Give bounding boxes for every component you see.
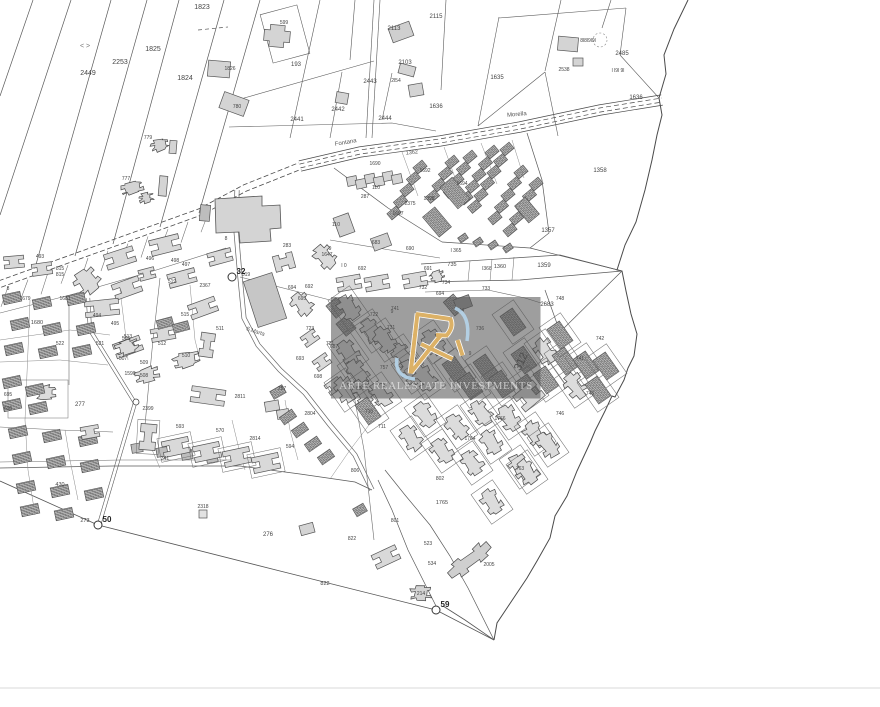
- svg-text:59: 59: [441, 600, 450, 609]
- svg-text:2442: 2442: [331, 107, 345, 113]
- svg-text:780: 780: [233, 104, 242, 110]
- svg-text:32: 32: [237, 267, 246, 276]
- svg-text:2811: 2811: [235, 394, 246, 400]
- svg-text:508: 508: [140, 373, 149, 379]
- svg-text:2441: 2441: [290, 117, 304, 123]
- svg-text:692: 692: [305, 284, 314, 290]
- svg-text:1764: 1764: [464, 436, 475, 442]
- svg-text:734: 734: [442, 280, 451, 286]
- svg-text:110: 110: [372, 185, 380, 191]
- svg-text:276: 276: [263, 532, 274, 538]
- svg-text:777: 777: [122, 176, 131, 182]
- svg-text:8: 8: [225, 236, 228, 242]
- svg-text:497: 497: [182, 262, 191, 268]
- svg-text:511: 511: [216, 326, 224, 332]
- svg-text:593: 593: [176, 424, 185, 430]
- svg-text:745: 745: [586, 391, 595, 397]
- svg-text:l368: l368: [482, 266, 492, 272]
- svg-text:757: 757: [278, 386, 287, 392]
- svg-text:522: 522: [56, 341, 65, 347]
- svg-text:2103: 2103: [398, 60, 412, 66]
- svg-text:683: 683: [372, 240, 381, 246]
- svg-text:1826: 1826: [224, 66, 235, 72]
- svg-text:283: 283: [283, 243, 292, 249]
- svg-text:341: 341: [161, 456, 170, 462]
- svg-text:594: 594: [286, 444, 295, 450]
- svg-text:l 0: l 0: [341, 263, 347, 269]
- svg-text:695: 695: [298, 296, 307, 302]
- svg-text:802: 802: [436, 476, 445, 482]
- svg-text:2375: 2375: [404, 201, 415, 207]
- svg-text:2804: 2804: [304, 411, 315, 417]
- svg-text:509: 509: [140, 360, 149, 366]
- svg-text:1679: 1679: [19, 296, 30, 302]
- svg-text:815: 815: [56, 266, 65, 272]
- svg-text:2683: 2683: [540, 302, 554, 308]
- svg-text:1359: 1359: [537, 263, 551, 269]
- svg-text:748: 748: [556, 296, 565, 302]
- svg-text:2449: 2449: [80, 70, 96, 77]
- svg-text:1694: 1694: [456, 181, 467, 187]
- svg-text:2814: 2814: [249, 436, 260, 442]
- svg-text:1824: 1824: [177, 75, 193, 82]
- svg-text:2005: 2005: [483, 562, 494, 568]
- svg-text:692: 692: [358, 266, 367, 272]
- svg-text:1647: 1647: [321, 252, 332, 258]
- svg-text:2253: 2253: [112, 59, 128, 66]
- svg-text:1690: 1690: [369, 161, 380, 167]
- svg-text:1357: 1357: [541, 228, 555, 234]
- svg-text:733: 733: [482, 286, 491, 292]
- svg-text:277: 277: [75, 402, 86, 408]
- svg-text:822: 822: [320, 581, 329, 587]
- svg-text:742: 742: [596, 336, 605, 342]
- svg-text:711: 711: [378, 424, 386, 430]
- svg-text:496: 496: [146, 256, 155, 262]
- svg-text:1362: 1362: [405, 149, 418, 156]
- svg-text:8: 8: [7, 286, 10, 292]
- svg-text:512: 512: [158, 341, 167, 347]
- svg-text:521: 521: [96, 341, 105, 347]
- svg-text:214: 214: [417, 591, 426, 597]
- svg-text:2399: 2399: [142, 406, 153, 412]
- svg-text:2367: 2367: [199, 283, 210, 289]
- svg-text:779: 779: [144, 135, 153, 141]
- svg-text:2115: 2115: [430, 14, 444, 20]
- svg-text:570: 570: [216, 428, 225, 434]
- svg-text:494: 494: [93, 313, 102, 319]
- svg-text:1825: 1825: [145, 46, 161, 53]
- svg-text:1636: 1636: [429, 104, 443, 110]
- svg-text:698: 698: [314, 374, 323, 380]
- svg-text:2485: 2485: [615, 51, 629, 57]
- svg-text:1766: 1766: [494, 416, 505, 422]
- svg-text:2538: 2538: [558, 67, 569, 73]
- svg-text:694: 694: [288, 285, 297, 291]
- svg-text:1765: 1765: [436, 500, 448, 506]
- svg-text:694: 694: [436, 291, 445, 297]
- svg-text:746: 746: [556, 411, 565, 417]
- svg-text:723: 723: [306, 326, 315, 332]
- svg-text:815: 815: [56, 272, 65, 278]
- svg-text:696: 696: [4, 406, 13, 412]
- svg-text:1681: 1681: [59, 296, 70, 302]
- svg-text:507: 507: [119, 356, 128, 362]
- svg-text:1823: 1823: [194, 4, 210, 11]
- svg-text:1358: 1358: [593, 168, 607, 174]
- svg-text:523: 523: [424, 541, 433, 547]
- svg-text:2113: 2113: [388, 26, 402, 32]
- svg-text:715: 715: [365, 409, 374, 415]
- svg-text:690: 690: [406, 246, 415, 252]
- svg-text:193: 193: [291, 62, 302, 68]
- svg-text:505: 505: [122, 336, 131, 342]
- svg-text:1692: 1692: [419, 168, 430, 174]
- svg-text:822: 822: [348, 536, 357, 542]
- svg-text:2l54: 2l54: [391, 78, 401, 84]
- svg-text:273: 273: [80, 518, 89, 524]
- svg-text:430: 430: [55, 482, 64, 488]
- svg-text:515: 515: [181, 312, 190, 318]
- svg-text:1398: 1398: [423, 196, 434, 202]
- svg-text:1360: 1360: [494, 264, 506, 270]
- svg-text:498: 498: [171, 258, 180, 264]
- svg-text:510: 510: [182, 353, 191, 359]
- svg-text:735: 735: [447, 262, 456, 268]
- svg-text:110: 110: [332, 222, 340, 228]
- svg-text:1697: 1697: [392, 211, 403, 217]
- svg-text:2318: 2318: [197, 504, 208, 510]
- svg-text:< >: < >: [80, 43, 90, 50]
- svg-text:9: 9: [329, 246, 332, 252]
- svg-text:1590: 1590: [124, 371, 135, 377]
- svg-text:519: 519: [168, 279, 177, 285]
- svg-text:599: 599: [280, 20, 289, 26]
- svg-text:8l8l9l9l: 8l8l9l9l: [580, 38, 596, 44]
- svg-text:l l9l 9l: l l9l 9l: [612, 68, 625, 74]
- svg-text:1680: 1680: [31, 320, 43, 326]
- svg-text:763: 763: [516, 466, 525, 472]
- svg-text:695: 695: [4, 392, 13, 398]
- svg-text:741: 741: [576, 356, 585, 362]
- svg-text:50: 50: [103, 515, 112, 524]
- svg-text:806: 806: [351, 468, 360, 474]
- svg-text:287: 287: [361, 194, 370, 200]
- svg-text:2444: 2444: [378, 116, 392, 122]
- svg-text:691: 691: [424, 266, 433, 272]
- svg-text:693: 693: [296, 356, 305, 362]
- svg-text:1635: 1635: [490, 75, 504, 81]
- svg-text:1636: 1636: [629, 95, 643, 101]
- svg-text:732: 732: [419, 285, 428, 291]
- svg-text:495: 495: [111, 321, 120, 327]
- svg-text:534: 534: [428, 561, 437, 567]
- svg-text:l 365: l 365: [451, 248, 462, 254]
- svg-text:2443: 2443: [363, 79, 377, 85]
- svg-text:ARTE REALESTATE INVESTMENTS: ARTE REALESTATE INVESTMENTS: [339, 380, 533, 392]
- svg-text:801: 801: [391, 518, 400, 524]
- svg-text:493: 493: [36, 254, 45, 260]
